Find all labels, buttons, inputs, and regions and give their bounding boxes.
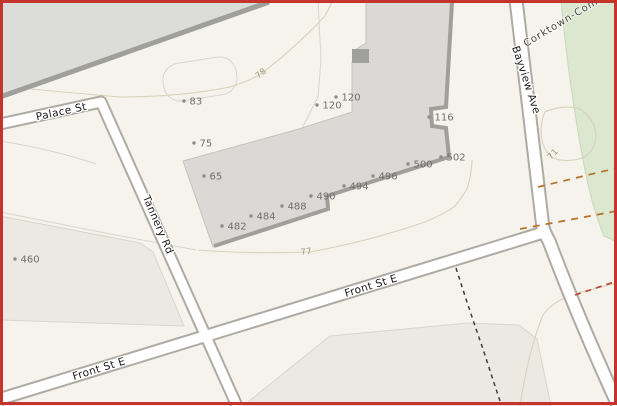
address-dot (202, 174, 205, 177)
address-dot (371, 174, 374, 177)
address-label: 484 (257, 212, 276, 223)
address-dot (439, 155, 442, 158)
address-dot (427, 115, 430, 118)
address-dot (182, 99, 185, 102)
contour-label-77: 77 (300, 246, 313, 257)
address-label: 120 (323, 101, 342, 112)
address-dot (13, 257, 16, 260)
address-dot (249, 214, 252, 217)
address-label: 490 (317, 192, 336, 203)
address-label: 482 (228, 222, 247, 233)
address-label: 494 (350, 182, 369, 193)
address-dot (309, 194, 312, 197)
address-label: 500 (414, 160, 433, 171)
address-dot (334, 95, 337, 98)
address-label: 488 (288, 202, 307, 213)
address-label: 116 (435, 113, 454, 124)
address-dot (406, 162, 409, 165)
address-label: 65 (210, 172, 223, 183)
address-dot (192, 141, 195, 144)
address-label: 496 (379, 172, 398, 183)
address-dot (280, 204, 283, 207)
map-svg: 4608375651201201164824844884904944965005… (0, 0, 617, 406)
map-canvas[interactable]: 4608375651201201164824844884904944965005… (0, 0, 617, 406)
building-wall-stub (352, 49, 369, 63)
address-dot (220, 224, 223, 227)
address-label: 502 (447, 153, 466, 164)
address-dot (315, 103, 318, 106)
address-label: 75 (200, 139, 213, 150)
address-label: 83 (190, 97, 203, 108)
address-label: 120 (342, 93, 361, 104)
address-label: 460 (21, 255, 40, 266)
address-dot (342, 184, 345, 187)
